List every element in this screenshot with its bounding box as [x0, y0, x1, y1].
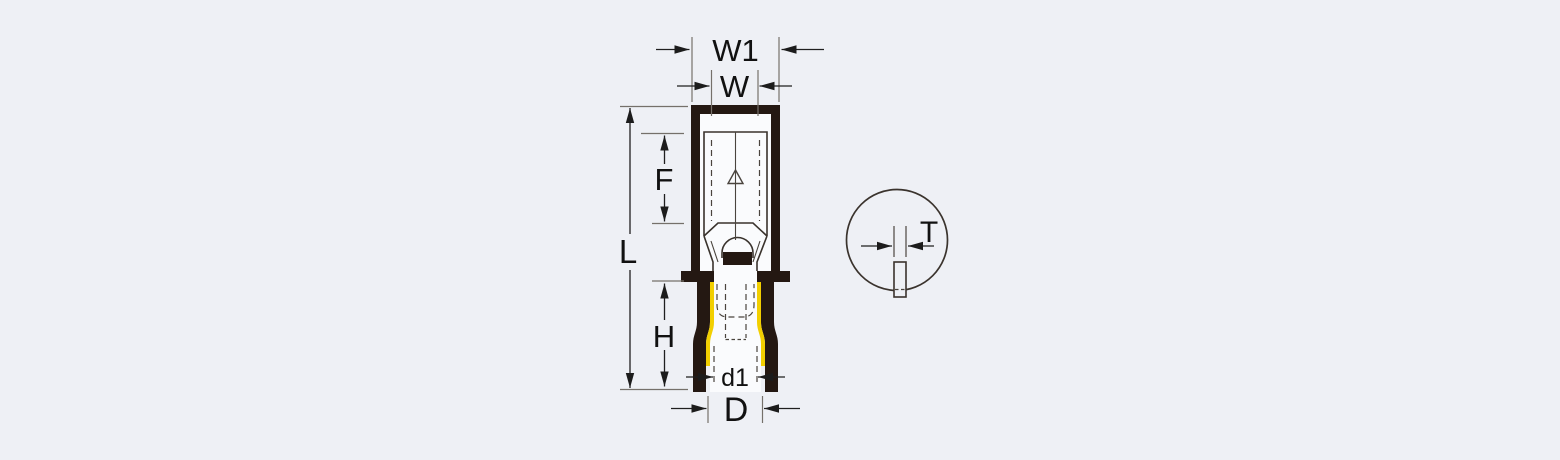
f-label: F — [655, 162, 674, 197]
t-label: T — [920, 216, 938, 249]
contact-base-fill — [723, 252, 752, 265]
terminal-dimension-diagram: W1 W L F — [0, 0, 1560, 460]
tab-cross-section — [894, 262, 906, 297]
h-label: H — [653, 319, 675, 354]
w-label: W — [720, 69, 750, 104]
collar-right — [757, 271, 790, 282]
w1-label: W1 — [712, 33, 759, 68]
l-label: L — [619, 233, 637, 270]
collar-opening — [714, 271, 757, 282]
d1-label: d1 — [721, 364, 749, 392]
d-label: D — [724, 391, 749, 429]
collar-left — [681, 271, 714, 282]
terminal-front-view — [681, 105, 790, 392]
